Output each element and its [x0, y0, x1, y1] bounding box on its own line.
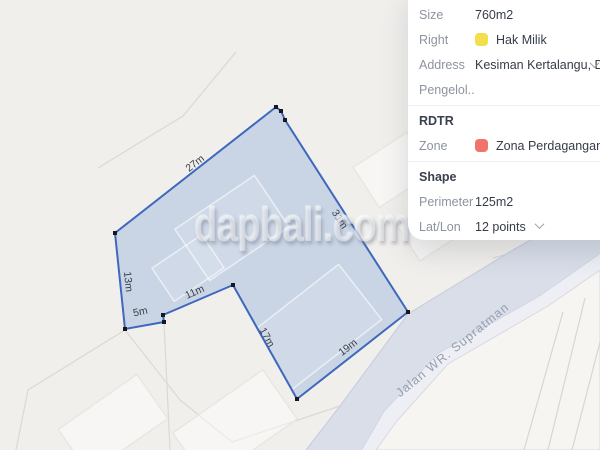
latlon-label: Lat/Lon — [419, 220, 475, 234]
row-size: Size 760m2 — [408, 2, 600, 27]
row-zone: Zone Zona Perdagangan dan — [408, 133, 600, 158]
rdtr-section-header: RDTR — [408, 109, 600, 133]
address-label: Address — [419, 58, 475, 72]
map-view[interactable]: Jalan WR. Supratman 2 — [0, 0, 600, 450]
shape-section-header: Shape — [408, 165, 600, 189]
right-label: Right — [419, 33, 475, 47]
shape-header-text: Shape — [419, 170, 457, 184]
edge-label-13m: 13m — [121, 271, 135, 293]
rdtr-header-text: RDTR — [419, 114, 454, 128]
chevron-down-icon[interactable] — [534, 219, 544, 229]
address-value: Kesiman Kertalangu, De... — [475, 58, 600, 72]
row-address[interactable]: Address Kesiman Kertalangu, De... — [408, 52, 600, 77]
size-label: Size — [419, 8, 475, 22]
latlon-value: 12 points — [475, 220, 526, 234]
divider — [408, 105, 600, 106]
zone-badge — [475, 139, 488, 152]
zone-label: Zone — [419, 139, 475, 153]
zone-value: Zona Perdagangan dan — [496, 139, 600, 153]
perimeter-label: Perimeter — [419, 195, 475, 209]
right-badge — [475, 33, 488, 46]
divider — [408, 161, 600, 162]
perimeter-value: 125m2 — [475, 195, 513, 209]
info-panel: Size 760m2 Right Hak Milik Address Kesim… — [408, 0, 600, 240]
manager-label: Pengelol... — [419, 83, 475, 97]
row-manager: Pengelol... — [408, 77, 600, 102]
right-value: Hak Milik — [496, 33, 547, 47]
row-perimeter: Perimeter 125m2 — [408, 189, 600, 214]
row-right: Right Hak Milik — [408, 27, 600, 52]
size-value: 760m2 — [475, 8, 513, 22]
row-latlon[interactable]: Lat/Lon 12 points — [408, 214, 600, 239]
